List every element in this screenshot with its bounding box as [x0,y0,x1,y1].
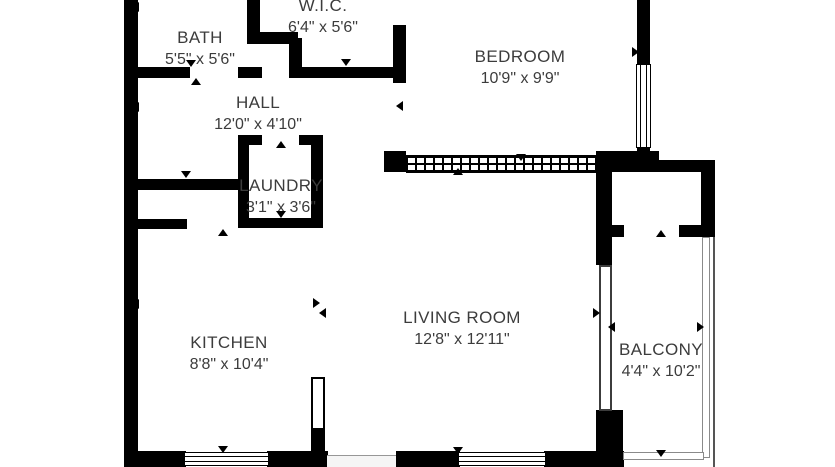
door-marker-icon [218,229,228,236]
door-marker-icon [341,59,351,66]
door-marker-icon [319,308,326,318]
door-marker-icon [396,101,403,111]
door-marker-icon [453,168,463,175]
door-marker-icon [608,322,615,332]
door-marker-icon [186,60,196,67]
door-marker-icon [132,102,139,112]
floor-plan: BATH 5'5" x 5'6" W.I.C. 6'4" x 5'6" HALL… [0,0,835,467]
markers-layer [0,0,835,467]
door-marker-icon [313,298,320,308]
door-marker-icon [398,47,405,57]
door-marker-icon [656,450,666,457]
door-marker-icon [453,447,463,454]
door-marker-icon [191,78,201,85]
door-marker-icon [276,211,286,218]
door-marker-icon [516,154,526,161]
door-marker-icon [632,47,639,57]
door-marker-icon [218,446,228,453]
door-marker-icon [697,322,704,332]
door-marker-icon [181,171,191,178]
door-marker-icon [593,308,600,318]
door-marker-icon [276,141,286,148]
door-marker-icon [656,230,666,237]
door-marker-icon [132,2,139,12]
door-marker-icon [132,299,139,309]
